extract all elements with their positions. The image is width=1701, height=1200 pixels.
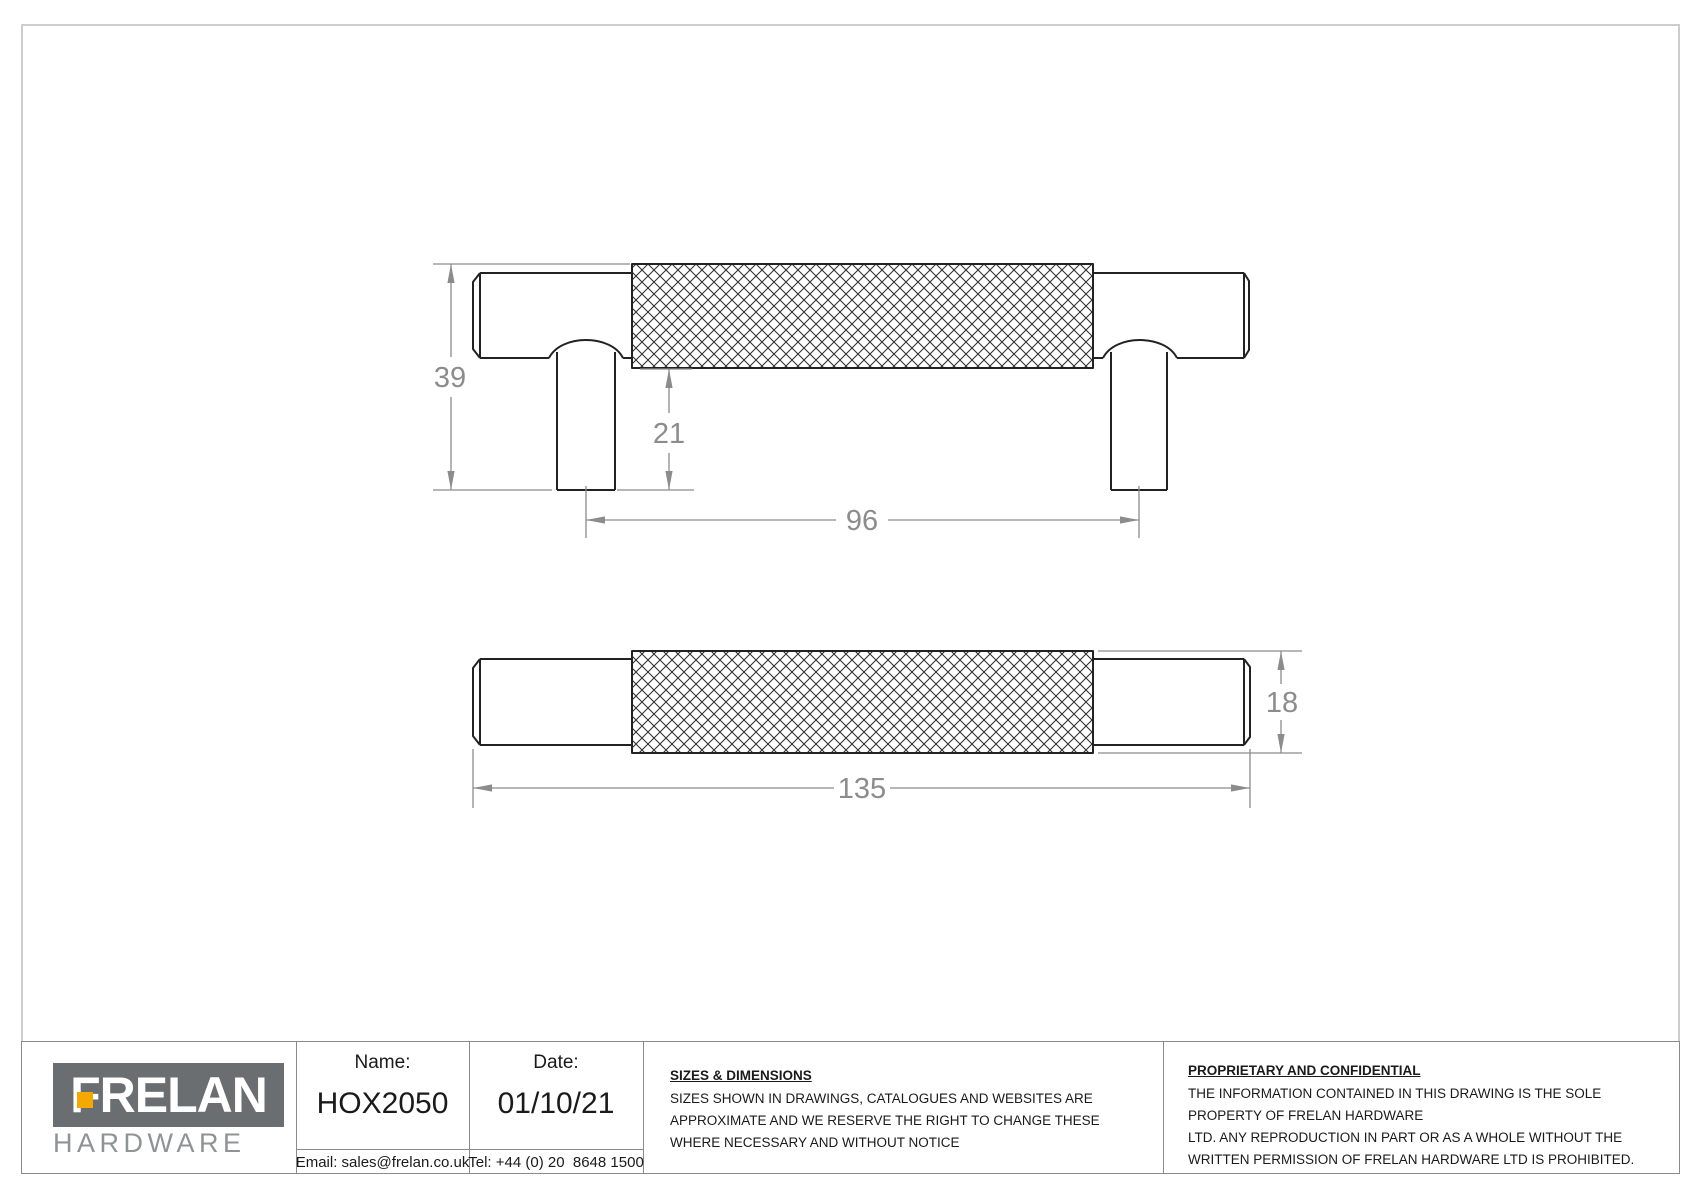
front-view	[473, 264, 1249, 490]
logo-cell: FRELAN HARDWARE	[22, 1042, 296, 1173]
date-cell: Date: 01/10/21	[469, 1042, 643, 1149]
logo-subtitle: HARDWARE	[53, 1130, 246, 1157]
dim-fixing-centres: 96	[846, 505, 878, 537]
dim-overall-length: 135	[838, 773, 886, 805]
product-code: HOX2050	[296, 1087, 469, 1121]
drawing-sheet: 39 21 96	[0, 0, 1701, 1200]
logo-orange-square-icon	[77, 1092, 93, 1108]
plan-view-knurl	[632, 651, 1093, 753]
proprietary-heading: PROPRIETARY AND CONFIDENTIAL	[1188, 1063, 1679, 1078]
email-cell: Email: sales@frelan.co.uk	[296, 1149, 469, 1175]
name-label: Name:	[296, 1052, 469, 1074]
sizes-body: SIZES SHOWN IN DRAWINGS, CATALOGUES AND …	[670, 1088, 1122, 1154]
dim-diameter: 18	[1266, 687, 1298, 719]
telephone-cell: Tel: +44 (0) 20 8648 1500	[469, 1149, 643, 1175]
name-cell: Name: HOX2050	[296, 1042, 469, 1149]
proprietary-body-line2: LTD. ANY REPRODUCTION IN PART OR AS A WH…	[1188, 1127, 1666, 1171]
plan-view	[473, 651, 1250, 753]
dim-post-height: 21	[653, 418, 685, 450]
front-view-knurl	[632, 264, 1093, 368]
proprietary-cell: PROPRIETARY AND CONFIDENTIAL THE INFORMA…	[1162, 1042, 1679, 1173]
front-view-dimension-labels: 39 21 96	[434, 362, 878, 537]
proprietary-body-line1: THE INFORMATION CONTAINED IN THIS DRAWIN…	[1188, 1083, 1666, 1127]
sizes-and-dimensions-cell: SIZES & DIMENSIONS SIZES SHOWN IN DRAWIN…	[642, 1042, 1162, 1173]
title-block: FRELAN HARDWARE Name: HOX2050 Date: 01/1…	[21, 1041, 1680, 1174]
drawing-date: 01/10/21	[469, 1087, 643, 1121]
technical-drawing: 39 21 96	[0, 0, 1701, 1200]
date-label: Date:	[469, 1052, 643, 1074]
logo-brand-text: FRELAN	[70, 1070, 267, 1120]
sizes-heading: SIZES & DIMENSIONS	[670, 1068, 1162, 1083]
dim-overall-height: 39	[434, 362, 466, 394]
